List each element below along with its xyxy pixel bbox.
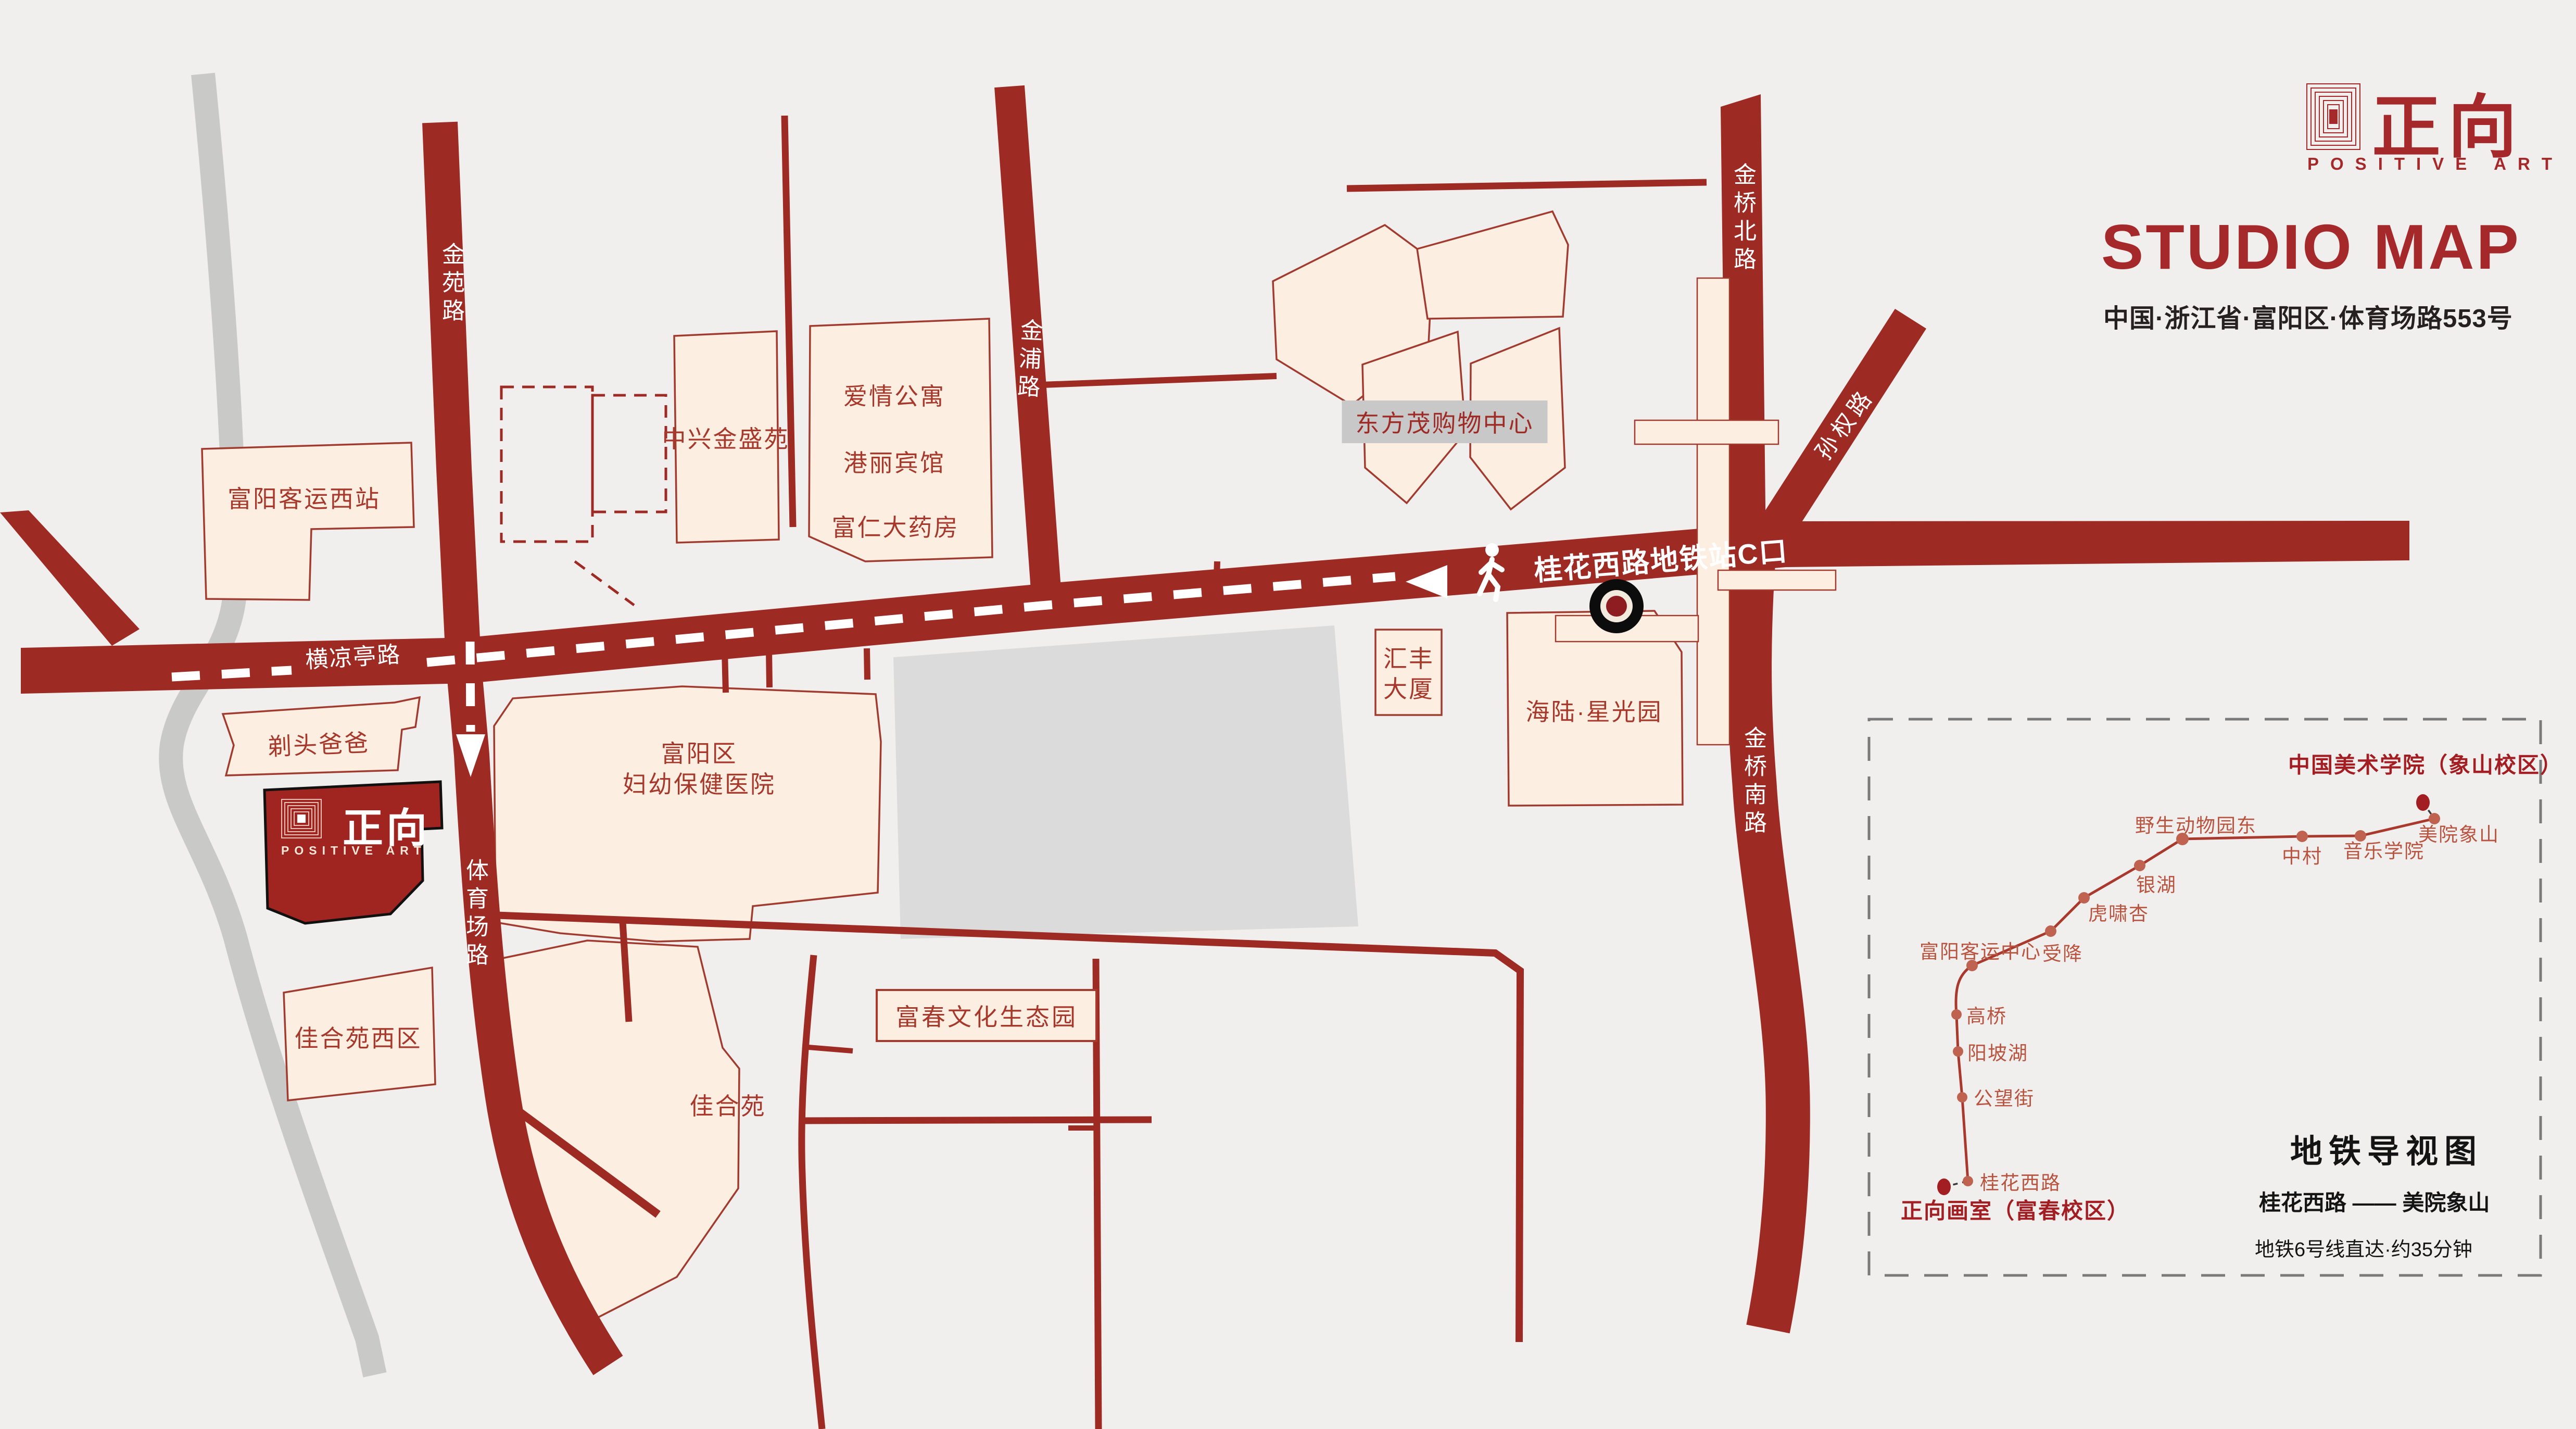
label-hailu: 海陆·星光园 <box>1525 693 1662 728</box>
studio-address: 中国·浙江省·富阳区·体育场路553号 <box>2103 298 2513 335</box>
label-aiqing: 爱情公寓 <box>843 378 945 412</box>
brand-logo-icon <box>2306 83 2360 150</box>
station-label: 音乐学院 <box>2343 835 2425 863</box>
station-label: 公望街 <box>1974 1083 2035 1111</box>
brand-logo-en: POSITIVE ART <box>2307 154 2564 174</box>
road-label-jinpu: 金浦路 <box>1009 317 1046 403</box>
station-label: 美院象山 <box>2418 819 2499 847</box>
label-fuchun: 富春文化生态园 <box>876 989 1097 1042</box>
metro-exit-marker <box>1589 579 1644 633</box>
building-keyun-xizhan <box>202 443 414 600</box>
studio-logo-icon <box>281 799 322 838</box>
metro-route: 桂花西路 —— 美院象山 <box>2259 1185 2490 1217</box>
metro-note: 地铁6号线直达·约35分钟 <box>2255 1233 2472 1262</box>
station-label: 阳坡湖 <box>1967 1037 2028 1066</box>
label-gangli: 港丽宾馆 <box>843 444 945 479</box>
studio-map-poster: 富阳客运西站 中兴金盛苑 爱情公寓 港丽宾馆 富仁大药房 东方茂购物中心 汇丰 … <box>0 0 2576 1429</box>
road-label-hengliangting: 横凉亭路 <box>304 635 402 674</box>
label-hospital-1: 富阳区 <box>661 735 738 769</box>
major-roads <box>0 94 2409 694</box>
building-dongfangmao-b <box>1417 211 1568 319</box>
station-label: 桂花西路 <box>1980 1167 2061 1195</box>
label-jiaheyuan-xi: 佳合苑西区 <box>295 1020 422 1054</box>
label-keyun-xizhan: 富阳客运西站 <box>228 480 381 515</box>
station-label: 野生动物园东 <box>2135 810 2257 838</box>
metro-start-label: 正向画室（富春校区） <box>1901 1194 2130 1225</box>
station-label: 银湖 <box>2136 869 2177 897</box>
road-label-tiyuchang: 体育场路 <box>458 858 491 971</box>
building-hospital <box>494 686 881 942</box>
page-title: STUDIO MAP <box>2101 210 2521 283</box>
label-jiaheyuan: 佳合苑 <box>690 1087 766 1122</box>
label-furen: 富仁大药房 <box>832 509 959 543</box>
station-label: 中村 <box>2282 841 2322 869</box>
metro-title: 地铁导视图 <box>2290 1125 2483 1172</box>
label-dongfangmao: 东方茂购物中心 <box>1342 400 1548 443</box>
road-left-fork <box>0 510 140 646</box>
studio-logo-en: POSITIVE ART <box>281 844 426 858</box>
road-label-jinqiaonan: 金桥南路 <box>1736 726 1770 838</box>
station-label: 富阳客运中心 <box>1920 936 2041 964</box>
metro-end-label: 中国美术学院（象山校区） <box>2288 748 2563 780</box>
station-label: 高桥 <box>1966 1000 2007 1029</box>
label-hospital-2: 妇幼保健医院 <box>623 766 776 800</box>
label-huifeng-2: 大厦 <box>1383 670 1434 705</box>
road-label-jinqiaobei: 金桥北路 <box>1726 162 1759 275</box>
metro-guide-box: 桂花西路 公望街 阳坡湖 高桥 富阳客运中心 受降 虎啸杏 银湖 野生动物园东 … <box>1867 718 2542 1277</box>
label-huifeng-1: 汇丰 <box>1383 640 1434 674</box>
label-zhongxing: 中兴金盛苑 <box>662 420 790 455</box>
gray-block <box>893 625 1358 939</box>
station-label: 虎啸杏 <box>2088 898 2149 926</box>
road-jinqiaonan <box>1750 558 1788 1329</box>
station-label: 受降 <box>2042 938 2083 966</box>
dashed-outlines <box>501 387 666 605</box>
label-titou: 剃头爸爸 <box>267 724 371 762</box>
road-label-jinyuan: 金苑路 <box>434 242 468 327</box>
